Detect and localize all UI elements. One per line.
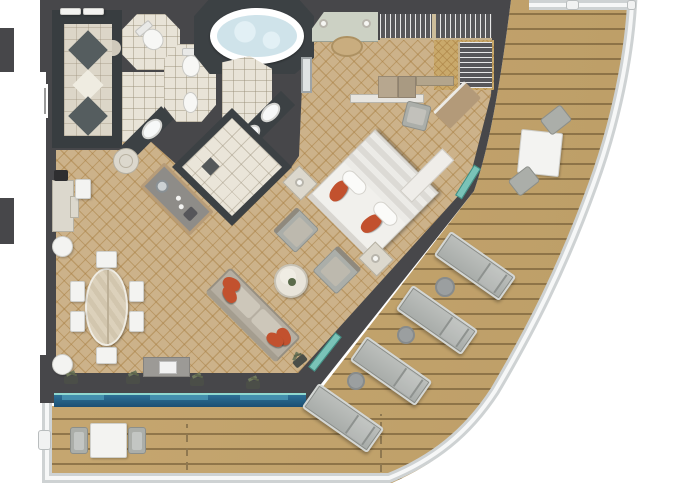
nightstand-lamp <box>371 254 380 263</box>
closet-divider <box>432 14 436 40</box>
tv-console <box>143 357 190 377</box>
closet-hanging-rail <box>380 14 492 40</box>
coffee-table <box>274 264 308 298</box>
sill-plant <box>246 381 260 389</box>
entry-door-leaf <box>60 8 81 15</box>
deck-side-table <box>397 326 415 344</box>
dining-chair <box>96 251 117 268</box>
dining-chair <box>70 311 85 332</box>
bar-sink <box>153 177 171 195</box>
pedestal-table <box>113 148 139 174</box>
sill-plant <box>190 378 204 386</box>
window-glass-highlight <box>62 395 104 400</box>
vanity-stool <box>331 36 363 57</box>
neighbor-wall-tab <box>0 28 14 72</box>
nightstand-lamp <box>295 178 304 187</box>
dining-chair <box>96 347 117 364</box>
console-chair <box>75 179 91 199</box>
table-centerpiece <box>288 278 296 286</box>
vanity-lamp <box>362 19 371 28</box>
bar-appliance <box>183 206 199 222</box>
deck-chair <box>70 427 88 454</box>
entry-hall <box>52 10 122 148</box>
railing-post <box>627 0 636 10</box>
mirror-panel <box>301 57 312 93</box>
desk-shelf-box <box>398 76 416 98</box>
suite-floor-plan <box>0 0 680 486</box>
sill-plant <box>126 376 140 384</box>
bidet <box>183 92 198 113</box>
marble-console-step <box>70 196 79 218</box>
pedestal-stand <box>52 236 73 257</box>
deck-side-table <box>347 372 365 390</box>
dining-table <box>85 268 128 346</box>
window-glass-highlight <box>150 395 208 400</box>
deck-side-table <box>435 277 455 297</box>
desk-shelf-box <box>378 76 398 98</box>
whirlpool-tub <box>210 8 304 64</box>
desk-shelf <box>416 76 454 86</box>
dining-chair <box>129 281 144 302</box>
railing-post <box>38 430 51 450</box>
side-door-opening <box>38 84 48 118</box>
railing-post <box>566 0 579 10</box>
neighbor-wall-tab <box>0 198 14 244</box>
dining-chair <box>129 311 144 332</box>
bar-cup <box>175 195 182 202</box>
television <box>159 361 177 374</box>
side-door-leaf <box>44 88 46 114</box>
bar-cup <box>178 203 185 210</box>
espresso-machine <box>54 170 68 181</box>
window-glass-highlight <box>240 395 288 400</box>
deck-chair <box>128 427 146 454</box>
deck-table <box>90 423 127 458</box>
sill-plant <box>64 376 78 384</box>
dining-chair <box>70 281 85 302</box>
tub-water <box>217 15 297 57</box>
vanity-lamp <box>319 19 328 28</box>
entry-door-leaf <box>83 8 104 15</box>
